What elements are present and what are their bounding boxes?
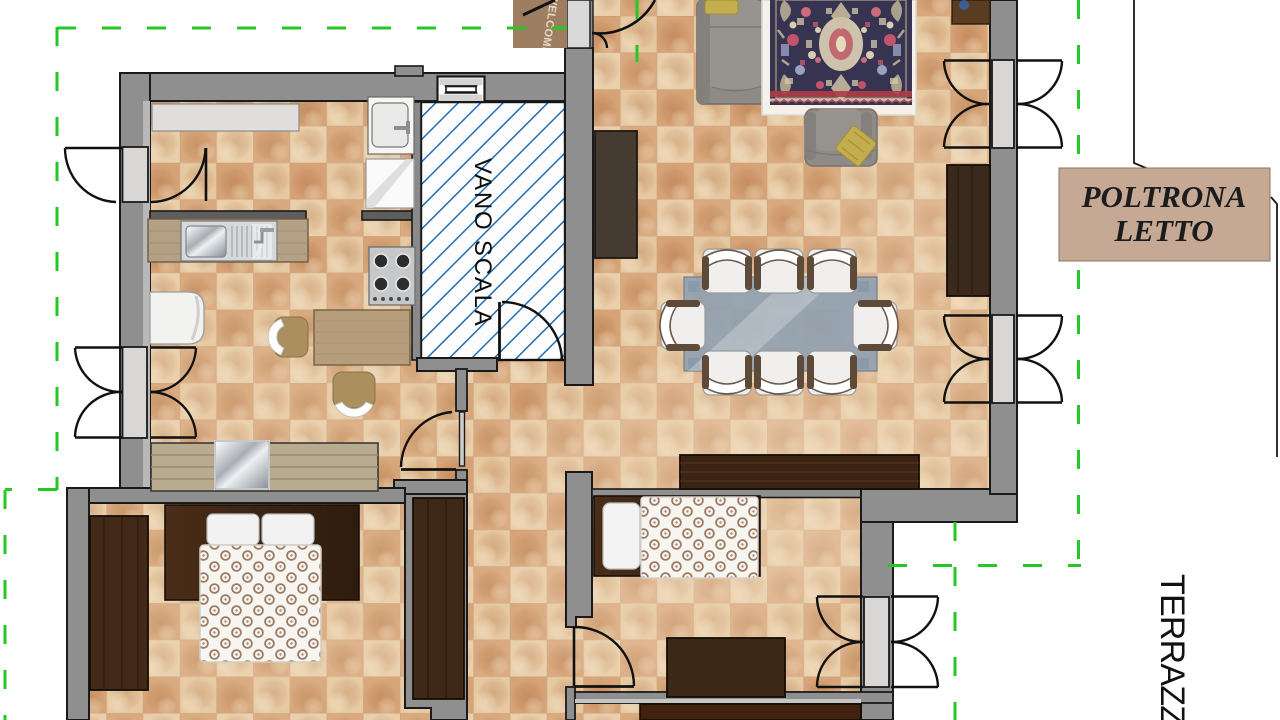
svg-text:VANO SCALA: VANO SCALA (469, 158, 496, 328)
svg-text:POLTRONA: POLTRONA (1081, 179, 1247, 214)
svg-text:LETTO: LETTO (1113, 213, 1213, 248)
svg-text:TERRAZZA: TERRAZZA (1153, 574, 1191, 720)
